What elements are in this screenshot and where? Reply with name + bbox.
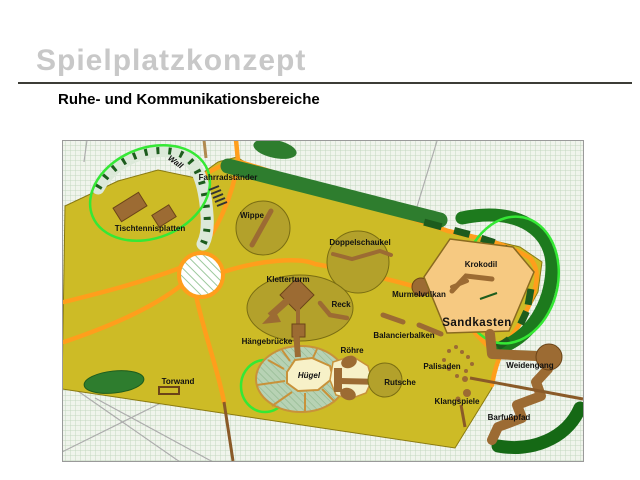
label-roehre: Röhre xyxy=(340,346,364,355)
label-wippe: Wippe xyxy=(240,211,264,220)
label-balancierbalken: Balancierbalken xyxy=(373,331,434,340)
label-haengebruecke: Hängebrücke xyxy=(242,337,293,346)
label-reck: Reck xyxy=(331,300,351,309)
playground-map: Wall Fahrradständer Tischtennisplatten W… xyxy=(62,140,584,462)
label-doppelschaukel: Doppelschaukel xyxy=(329,238,390,247)
label-palisaden: Palisaden xyxy=(423,362,460,371)
top-thin-path xyxy=(204,140,206,158)
label-klangspiele: Klangspiele xyxy=(435,397,480,406)
plaza-circle xyxy=(179,253,223,297)
page-subtitle: Ruhe- und Kommunikationsbereiche xyxy=(58,91,320,108)
label-sandkasten: Sandkasten xyxy=(442,317,512,329)
title-underline xyxy=(18,82,632,84)
page-title: Spielplatzkonzept xyxy=(36,44,306,78)
label-barfusspfad: Barfußpfad xyxy=(488,413,531,422)
suspension-bridge-figure xyxy=(296,331,298,357)
seesaw xyxy=(236,201,290,255)
label-weidengang: Weidengang xyxy=(506,361,554,370)
label-torwand: Torwand xyxy=(162,377,195,386)
label-murmelvulkan: Murmelvulkan xyxy=(392,290,446,299)
label-huegel: Hügel xyxy=(298,371,321,380)
label-rutsche: Rutsche xyxy=(384,378,416,387)
slide: Spielplatzkonzept Ruhe- und Kommunikatio… xyxy=(0,0,640,480)
label-fahrradstaender: Fahrradständer xyxy=(199,173,258,182)
label-krokodil: Krokodil xyxy=(465,260,497,269)
label-tischtennisplatten: Tischtennisplatten xyxy=(115,224,186,233)
label-kletterturm: Kletterturm xyxy=(266,275,309,284)
